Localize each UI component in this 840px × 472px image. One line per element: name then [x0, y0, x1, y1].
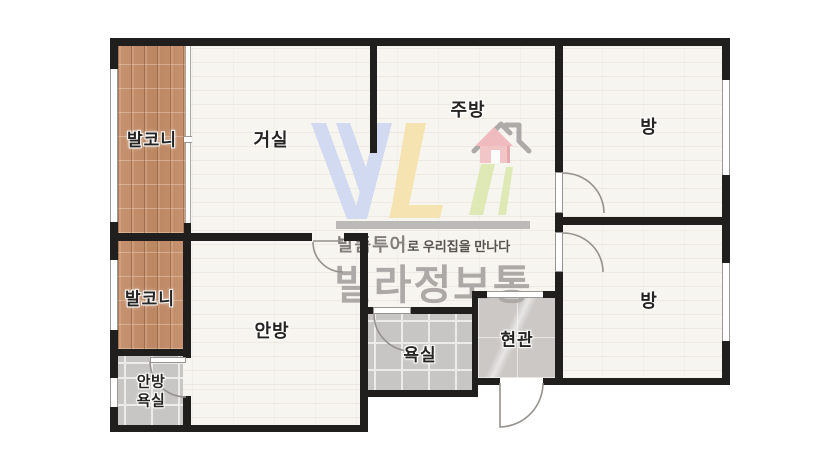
- room-label-master-bath-line1: 안방: [137, 373, 166, 390]
- window-room-top-right: [722, 80, 730, 175]
- door-leaf-room-top-right: [555, 172, 563, 213]
- window-balcony-bottom-left: [110, 260, 118, 330]
- room-label-master-bath: 안방 욕실: [137, 373, 166, 411]
- room-label-kitchen: 주방: [450, 96, 485, 122]
- window-balcony-glass-break: [184, 136, 192, 143]
- wall-masterbath-right-b: [183, 396, 191, 432]
- room-label-balcony-top: 발코니: [127, 126, 177, 151]
- door-leaf-master-bath: [150, 357, 186, 363]
- door-leaf-bathroom: [373, 307, 411, 314]
- window-masterbath-left: [110, 378, 118, 407]
- room-label-living-room: 거실: [253, 126, 288, 152]
- door-arc-front-door: [500, 383, 543, 427]
- window-balcony-living-glass: [185, 46, 191, 223]
- wall-kitchen-partial: [370, 46, 377, 153]
- wall-entrance-bottom-b: [543, 378, 555, 385]
- wall-rooms-left-a: [555, 46, 563, 172]
- wall-bottom-right: [555, 378, 730, 385]
- window-room-bottom-right: [722, 263, 730, 341]
- front-door-opening: [500, 378, 543, 385]
- wall-balcony-stub: [184, 223, 191, 233]
- wall-entrance-top-a: [478, 291, 487, 298]
- room-label-master-bedroom: 안방: [254, 317, 289, 343]
- entrance-threshold: [487, 291, 543, 298]
- wall-top: [110, 38, 730, 46]
- wall-master-right-step: [360, 241, 368, 432]
- door-leaf-room-bottom-right: [555, 232, 563, 272]
- wall-living-master-b: [344, 233, 368, 241]
- room-label-room-bottom-right: 방: [640, 287, 658, 313]
- wall-rooms-separator: [563, 217, 722, 225]
- floor-plan-canvas: 발품투어로 우리집을 만나다 빌라정보통: [0, 0, 840, 472]
- wall-balcony-masterbath-sep: [110, 349, 191, 356]
- wall-balcony-bottom-right: [183, 241, 191, 349]
- wall-living-master-a: [110, 233, 312, 241]
- wall-rooms-left-c: [555, 272, 563, 385]
- room-label-entrance: 현관: [500, 326, 533, 351]
- window-balcony-top-left: [110, 69, 118, 222]
- wall-bathroom-top-a: [360, 307, 373, 314]
- wall-bottom-left: [110, 425, 368, 432]
- room-label-bathroom: 욕실: [403, 341, 436, 366]
- room-label-room-top-right: 방: [640, 113, 658, 139]
- room-label-master-bath-line2: 욕실: [137, 392, 166, 409]
- wall-bathroom-top-b: [411, 307, 478, 314]
- wall-bathroom-bottom: [360, 390, 478, 397]
- wall-rooms-left-b: [555, 213, 563, 232]
- room-label-balcony-bottom: 발코니: [125, 285, 175, 310]
- wall-entrance-top-b: [543, 291, 563, 298]
